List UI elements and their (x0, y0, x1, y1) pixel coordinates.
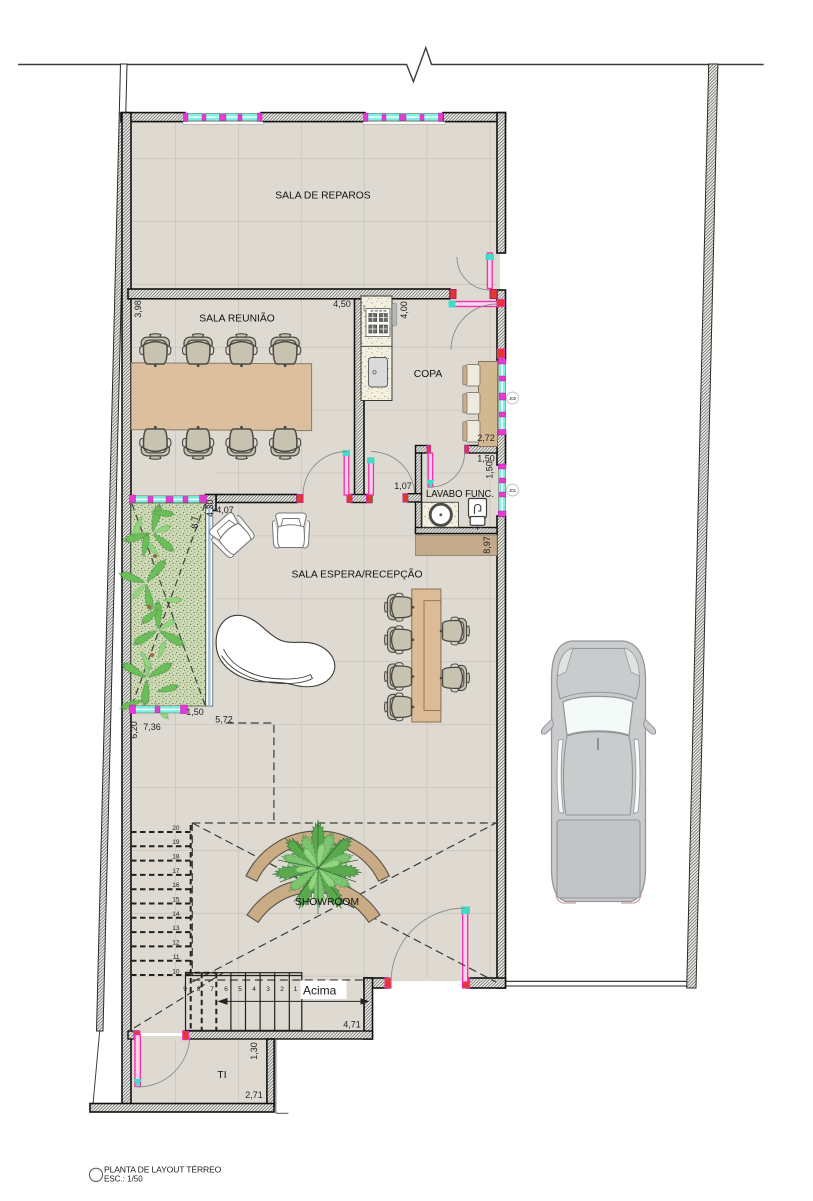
svg-text:18: 18 (172, 854, 180, 861)
svg-text:1,07: 1,07 (394, 481, 412, 491)
svg-text:SALA DE REPAROS: SALA DE REPAROS (275, 191, 371, 202)
svg-text:PLANTA DE LAYOUT TÉRREO: PLANTA DE LAYOUT TÉRREO (104, 1165, 222, 1175)
svg-text:4: 4 (252, 986, 256, 993)
svg-text:12: 12 (172, 940, 180, 947)
svg-text:J02: J02 (509, 396, 517, 401)
svg-text:4,07: 4,07 (216, 505, 234, 515)
svg-text:10: 10 (172, 969, 180, 976)
svg-text:4,71: 4,71 (343, 1020, 361, 1030)
svg-text:7: 7 (210, 986, 214, 993)
svg-text:6: 6 (224, 986, 228, 993)
svg-text:9: 9 (183, 986, 187, 993)
svg-text:17: 17 (172, 868, 180, 875)
svg-text:2,72: 2,72 (477, 433, 495, 443)
svg-text:2,71: 2,71 (245, 1090, 263, 1100)
svg-text:4,30: 4,30 (205, 499, 215, 517)
svg-text:5: 5 (238, 986, 242, 993)
svg-text:TI: TI (217, 1070, 226, 1081)
svg-text:13: 13 (172, 925, 180, 932)
svg-text:14: 14 (172, 911, 180, 918)
svg-text:8: 8 (197, 986, 201, 993)
svg-text:3,98: 3,98 (133, 300, 143, 318)
svg-text:J01: J01 (509, 488, 517, 493)
svg-text:8,7: 8,7 (190, 516, 200, 529)
svg-text:1: 1 (294, 986, 298, 993)
svg-text:3: 3 (266, 986, 270, 993)
svg-text:1,30: 1,30 (249, 1042, 259, 1060)
svg-text:Acima: Acima (303, 984, 337, 998)
svg-text:8,97: 8,97 (482, 536, 492, 554)
svg-text:2: 2 (280, 986, 284, 993)
svg-text:SHOWROOM: SHOWROOM (295, 897, 359, 908)
svg-text:5,72: 5,72 (215, 715, 233, 725)
svg-text:19: 19 (172, 839, 180, 846)
svg-text:1,50: 1,50 (186, 707, 204, 717)
svg-text:11: 11 (173, 954, 180, 961)
svg-text:SALA ESPERA/RECEPÇÃO: SALA ESPERA/RECEPÇÃO (291, 568, 422, 581)
svg-text:ESC.: 1/50: ESC.: 1/50 (104, 1175, 143, 1184)
svg-text:16: 16 (172, 882, 180, 889)
svg-text:SALA REUNIÃO: SALA REUNIÃO (199, 312, 275, 325)
svg-text:LAVABO FUNC.: LAVABO FUNC. (426, 489, 494, 500)
svg-text:4,00: 4,00 (399, 301, 409, 319)
svg-text:7,36: 7,36 (143, 722, 161, 732)
svg-text:20: 20 (172, 825, 180, 832)
svg-text:4,50: 4,50 (333, 299, 351, 309)
svg-text:COPA: COPA (414, 369, 443, 380)
svg-text:6,20: 6,20 (129, 721, 139, 739)
svg-text:1,50: 1,50 (485, 461, 495, 479)
svg-text:15: 15 (172, 897, 180, 904)
